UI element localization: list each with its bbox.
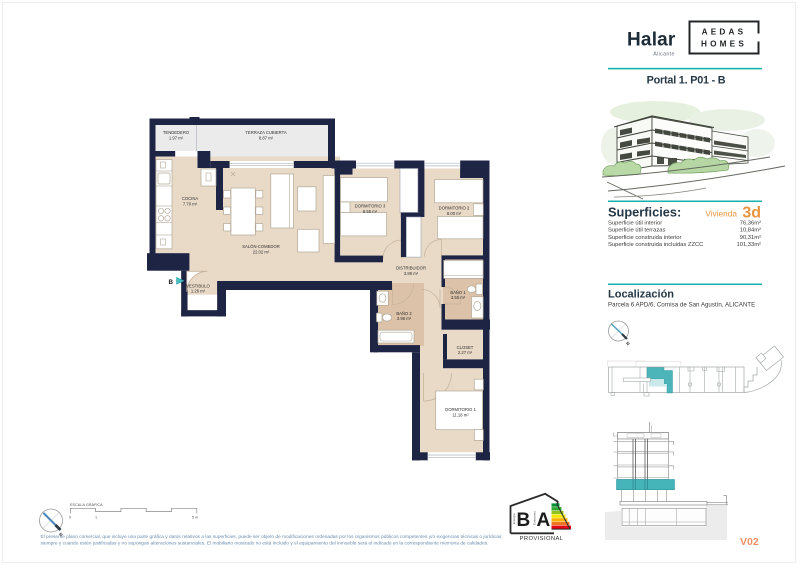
svg-text:2.27 m²: 2.27 m² (458, 350, 473, 355)
svg-text:3.96 m²: 3.96 m² (397, 316, 412, 321)
svg-text:Superficies:: Superficies: (608, 205, 681, 220)
svg-text:7.70 m²: 7.70 m² (183, 202, 198, 207)
svg-text:Superficie útil terrazas: Superficie útil terrazas (608, 228, 665, 234)
svg-text:10,84m²: 10,84m² (740, 228, 761, 234)
svg-text:90,31m²: 90,31m² (740, 235, 761, 241)
svg-text:101,33m²: 101,33m² (737, 242, 762, 248)
svg-text:TENDEDERO: TENDEDERO (163, 130, 190, 135)
svg-text:0: 0 (69, 516, 71, 520)
svg-text:Portal 1. P01 - B: Portal 1. P01 - B (647, 75, 726, 87)
svg-text:siempre y cuando estén justifi: siempre y cuando estén justificadas y no… (41, 540, 489, 546)
svg-text:DORMITORIO 3: DORMITORIO 3 (355, 204, 386, 209)
svg-text:COCINA: COCINA (182, 196, 198, 201)
svg-text:Superficie construida incluida: Superficie construida incluidas ZZCC (608, 242, 703, 248)
svg-text:3d: 3d (742, 205, 761, 222)
svg-text:3.55 m²: 3.55 m² (451, 295, 466, 300)
svg-text:1.26 m²: 1.26 m² (191, 289, 206, 294)
svg-text:11.18 m²: 11.18 m² (452, 413, 469, 418)
svg-text:Halar: Halar (627, 30, 676, 51)
svg-text:1: 1 (95, 516, 97, 520)
svg-text:HOMES: HOMES (701, 40, 747, 49)
svg-text:8.00 m²: 8.00 m² (447, 211, 462, 216)
svg-text:A: A (537, 510, 551, 531)
svg-text:ESCALA GRÁFICA: ESCALA GRÁFICA (70, 503, 103, 507)
svg-text:SALÓN-COMEDOR: SALÓN-COMEDOR (242, 244, 279, 249)
svg-text:22.02 m²: 22.02 m² (253, 250, 270, 255)
svg-text:B: B (517, 510, 531, 531)
svg-text:B: B (169, 279, 174, 286)
svg-text:8.55 m²: 8.55 m² (363, 209, 378, 214)
svg-text:Localización: Localización (608, 289, 674, 301)
svg-text:Parcela 6 APD/6, Cornisa de Sa: Parcela 6 APD/6, Cornisa de San Agustín,… (608, 302, 755, 309)
svg-text:76,36m²: 76,36m² (740, 221, 761, 227)
svg-text:DORMITORIO 1: DORMITORIO 1 (445, 407, 476, 412)
svg-text:El presente plano comercial, q: El presente plano comercial, que incluye… (41, 534, 503, 540)
svg-text:DORMITORIO 2: DORMITORIO 2 (439, 206, 470, 211)
svg-text:3.88 m²: 3.88 m² (404, 271, 419, 276)
svg-text:8.87 m²: 8.87 m² (259, 136, 274, 141)
svg-text:Superficie construida interior: Superficie construida interior (608, 235, 682, 241)
svg-text:5 m: 5 m (192, 516, 198, 520)
svg-text:AEDAS: AEDAS (702, 28, 747, 37)
svg-text:V02: V02 (740, 536, 759, 548)
svg-text:Alicante: Alicante (653, 52, 675, 58)
svg-text:1.97 m²: 1.97 m² (169, 136, 184, 141)
svg-text:PROVISIONAL: PROVISIONAL (520, 536, 564, 542)
svg-text:DISTRIBUIDOR: DISTRIBUIDOR (396, 266, 426, 271)
svg-text:Superficie útil interior: Superficie útil interior (608, 221, 662, 227)
svg-text:TERRAZA CUBIERTA: TERRAZA CUBIERTA (245, 130, 286, 135)
svg-text:Vivienda: Vivienda (705, 209, 737, 219)
